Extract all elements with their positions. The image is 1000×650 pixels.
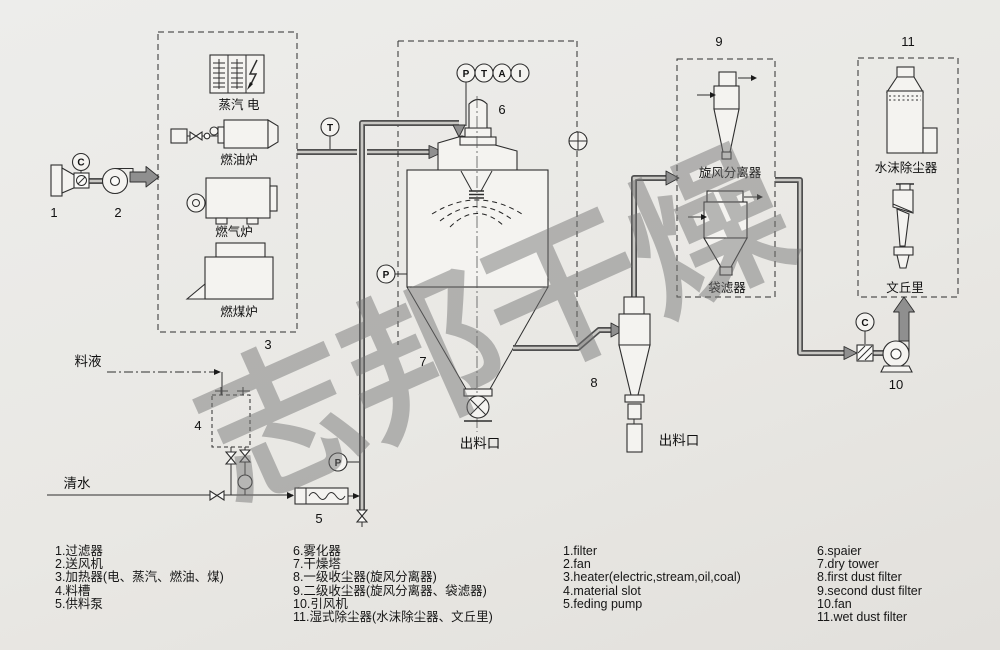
primary-cyclone: 8 出料口	[590, 171, 699, 452]
air-flow-arrow	[130, 167, 159, 188]
water-valve-icon	[210, 491, 217, 500]
c-gauge-exhaust-label: C	[861, 318, 868, 329]
transfer-pump-icon	[238, 475, 252, 489]
steam-electric-heater: 蒸汽 电	[210, 55, 264, 112]
coal-furnace: 燃煤炉	[187, 243, 273, 319]
secondary-collector-box: 9 旋风分离器 袋滤器	[677, 34, 775, 297]
tank-valve2-icon	[240, 450, 250, 456]
coal-furnace-icon	[205, 257, 273, 299]
clean-water-label: 清水	[64, 476, 91, 491]
cyclone-outlet-label: 出料口	[659, 433, 700, 448]
atomizer-motor-icon	[469, 100, 487, 129]
legend-item: 3.heater(electric,stream,oil,coal)	[563, 571, 741, 584]
intake-fan: 2	[103, 167, 160, 221]
ptai-gauges: P T A I	[457, 64, 529, 126]
legend-column-cn-1: 1.过滤器 2.送风机 3.加热器(电、蒸汽、燃油、煤) 4.料槽 5.供料泵	[55, 545, 224, 611]
spray-dryer-flow-diagram: C 1 2 3 蒸汽 电	[0, 0, 1000, 650]
venturi-icon	[893, 190, 913, 213]
oil-furnace-label: 燃油炉	[220, 152, 258, 167]
tower-body	[407, 170, 548, 287]
venturi: 文丘里	[886, 184, 924, 295]
marker-10: 10	[889, 377, 903, 392]
air-filter-unit: C 1	[50, 154, 110, 221]
heater-box: 3 蒸汽 电	[158, 32, 297, 352]
oil-burner-icon	[171, 129, 187, 143]
marker-6: 6	[498, 102, 505, 117]
cyclone-discharge-canister	[627, 424, 642, 452]
tank-valve-icon	[226, 452, 236, 458]
filter-icon	[51, 165, 62, 196]
marker-3: 3	[264, 337, 271, 352]
feed-system: 料液 4 清水 5 P	[47, 354, 367, 527]
bag-filter-label: 袋滤器	[708, 281, 746, 295]
legend-item: 4.料槽	[55, 585, 224, 598]
ptai-i: I	[519, 69, 522, 80]
legend-item: 8.first dust filter	[817, 571, 922, 584]
cyclone-separator: 旋风分离器	[697, 72, 762, 180]
marker-4: 4	[194, 418, 201, 433]
water-mist-remover-label: 水沫除尘器	[875, 160, 938, 175]
steam-electric-label: 蒸汽 电	[219, 97, 260, 112]
marker-7: 7	[419, 354, 426, 369]
legend-column-en-1: 1.filter 2.fan 3.heater(electric,stream,…	[563, 545, 741, 611]
tower-outlet-label: 出料口	[460, 436, 501, 451]
t-gauge-label: T	[327, 123, 333, 134]
to-wet-collector-arrow	[894, 297, 915, 341]
p-gauge-feed-label: P	[335, 458, 342, 469]
legend-item: 11.wet dust filter	[817, 611, 922, 624]
legend-column-en-2: 6.spaier 7.dry tower 8.first dust filter…	[817, 545, 922, 624]
exhaust-line-arrow	[844, 347, 857, 360]
gas-furnace-icon	[206, 178, 270, 218]
coal-furnace-label: 燃煤炉	[220, 304, 258, 319]
legend-column-cn-2: 6.雾化器 7.干燥塔 8.一级收尘器(旋风分离器) 9.二级收尘器(旋风分离器…	[293, 545, 493, 624]
bag-filter-icon	[704, 202, 747, 238]
atomizer-base	[460, 137, 496, 145]
legend-item: 5.feding pump	[563, 598, 741, 611]
legend-item: 11.湿式除尘器(水沫除尘器、文丘里)	[293, 611, 493, 624]
drain-valve-icon	[357, 510, 367, 516]
bag-filter: 袋滤器	[688, 191, 763, 295]
venturi-label: 文丘里	[886, 280, 924, 295]
oil-furnace: 燃油炉	[171, 120, 278, 167]
cyclone-cone	[619, 345, 650, 395]
p-gauge-tower-label: P	[383, 270, 390, 281]
marker-8: 8	[590, 375, 597, 390]
marker-1: 1	[50, 205, 57, 220]
water-mist-remover: 水沫除尘器	[875, 67, 938, 175]
legend-item: 3.加热器(电、蒸汽、燃油、煤)	[55, 571, 224, 584]
feed-pump-icon	[295, 488, 348, 504]
marker-11: 11	[901, 34, 915, 49]
gas-furnace-label: 燃气炉	[215, 224, 253, 239]
ptai-p: P	[463, 69, 470, 80]
ptai-a: A	[498, 69, 505, 80]
cyclone-separator-label: 旋风分离器	[699, 165, 762, 180]
legend-item: 4.material slot	[563, 585, 741, 598]
legend-item: 9.second dust filter	[817, 585, 922, 598]
legend-item: 9.二级收尘器(旋风分离器、袋滤器)	[293, 585, 493, 598]
tower-cone	[407, 287, 466, 389]
marker-5: 5	[315, 511, 322, 526]
legend-item: 8.一级收尘器(旋风分离器)	[293, 571, 493, 584]
marker-9: 9	[715, 34, 722, 49]
feed-liquid-label: 料液	[75, 354, 102, 369]
wet-collector-box: 11 水沫除尘器 文丘里	[858, 34, 958, 297]
oil-furnace-icon	[224, 120, 268, 148]
c-gauge-intake-label: C	[77, 158, 84, 169]
tower-exhaust-pipe	[513, 323, 624, 348]
legend-item: 5.供料泵	[55, 598, 224, 611]
cyclone-body	[619, 314, 650, 345]
feed-down-arrow	[453, 125, 465, 137]
ptai-t: T	[481, 69, 487, 80]
cyclone-separator-icon	[714, 86, 739, 109]
gas-furnace: 燃气炉	[187, 178, 277, 239]
material-tank	[212, 395, 250, 447]
marker-2: 2	[114, 205, 121, 220]
